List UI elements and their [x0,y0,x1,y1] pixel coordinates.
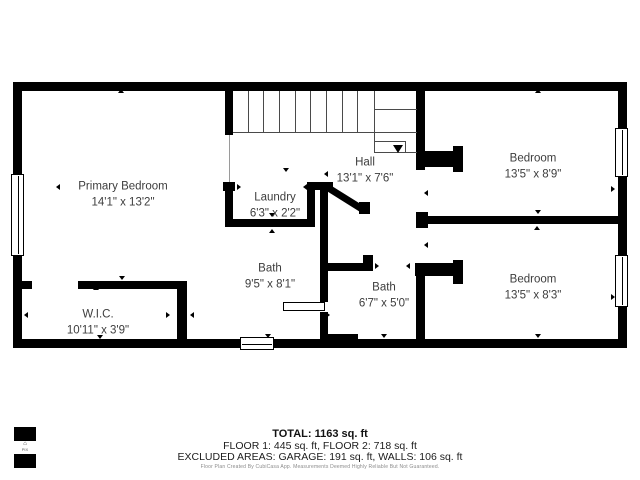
footer-total-area: TOTAL: 1163 sq. ft [0,428,640,440]
logo-bar-top [14,427,36,441]
dimension-tick [265,334,271,338]
wall-bedroom2-left [416,263,425,348]
dimension-tick [190,312,194,318]
wall-diagonal-end-block [359,202,370,214]
floor-plan-page: Primary Bedroom 14'1" x 13'2" Hall 13'1"… [0,0,640,480]
stair-tread [279,91,280,132]
dimension-tick [326,312,330,318]
stair-tread [326,91,327,132]
dimension-tick [24,312,28,318]
room-label-wic: W.I.C. 10'11" x 3'9" [67,308,129,339]
brand-logo: ⌂ PIX [13,427,37,468]
room-dimensions: 6'7" x 5'0" [359,296,409,312]
room-dimensions: 9'5" x 8'1" [245,277,295,293]
stair-tread [295,91,296,132]
room-label-bath-large: Bath 9'5" x 8'1" [245,262,295,293]
dimension-tick [303,184,307,190]
room-label-primary-bedroom: Primary Bedroom 14'1" x 13'2" [78,180,167,211]
room-dimensions: 10'11" x 3'9" [67,323,129,339]
logo-mark: ⌂ PIX [13,441,37,454]
dimension-tick [424,242,428,248]
wall-outer-right [618,82,627,348]
wall-bedroom1-stub-cap [453,146,463,172]
dimension-tick [118,89,124,93]
room-dimensions: 6'3" x 2'2" [250,206,300,222]
dimension-tick [375,263,379,269]
dimension-tick [269,229,275,233]
wall-wic-right [177,281,187,348]
room-name: Bedroom [505,152,562,168]
room-dimensions: 14'1" x 13'2" [78,195,167,211]
room-dimensions: 13'5" x 8'9" [505,167,562,183]
room-name: W.I.C. [67,308,129,324]
stair-winder-tread [374,109,417,110]
stair-winder-tread [374,141,405,142]
window-right-wall-top [615,128,628,177]
window-left-wall [11,174,24,256]
window-mullion [242,344,272,345]
dimension-tick [324,171,328,177]
window-right-wall-bottom [615,255,628,307]
dimension-tick [237,184,241,190]
room-name: Hall [337,156,394,172]
wall-bath2-door-jamb [363,255,373,271]
wall-bath2-stub-cap [453,260,463,284]
dimension-tick [535,89,541,93]
room-name: Bath [245,262,295,278]
room-dimensions: 13'1" x 7'6" [337,171,394,187]
footer-excluded-areas: EXCLUDED AREAS: GARAGE: 191 sq. ft, WALL… [0,451,640,463]
dimension-tick [534,226,540,230]
room-label-bedroom-bottom: Bedroom 13'5" x 8'3" [505,273,562,304]
window-mullion [622,257,623,305]
logo-text: PIX [13,447,37,452]
dimension-tick [611,186,615,192]
stair-tread [310,91,311,132]
room-label-hall: Hall 13'1" x 7'6" [337,156,394,187]
wall-bedroom-divider-cap [416,212,428,228]
wall-central-upper [320,182,328,302]
room-name: Laundry [250,191,300,207]
dimension-tick [283,168,289,172]
opening-primary-bedroom-door [229,135,230,182]
stair-tread [248,91,249,132]
dimension-tick [535,334,541,338]
wall-bedroom1-left [416,91,425,170]
room-label-bath-small: Bath 6'7" x 5'0" [359,281,409,312]
dimension-tick [406,263,410,269]
room-name: Primary Bedroom [78,180,167,196]
dimension-tick [119,276,125,280]
dimension-tick [56,184,60,190]
footer-disclaimer: Floor Plan Created By CubiCasa App. Meas… [0,464,640,470]
dimension-tick [535,210,541,214]
room-dimensions: 13'5" x 8'3" [505,288,562,304]
dimension-tick [166,312,170,318]
window-bottom-wall [240,337,274,350]
room-name: Bath [359,281,409,297]
room-label-bedroom-top: Bedroom 13'5" x 8'9" [505,152,562,183]
stair-winder-edge [374,91,375,153]
logo-bar-bottom [14,454,36,468]
room-name: Bedroom [505,273,562,289]
stair-down-arrow-icon [393,145,403,153]
stair-edge [233,132,417,133]
stair-tread [263,91,264,132]
dimension-tick [424,190,428,196]
window-mullion [622,130,623,175]
window-mullion [18,176,19,254]
sliding-door-leaf [283,302,325,311]
dimension-tick [381,334,387,338]
dimension-tick [93,286,99,290]
wall-stairwell-left [225,91,233,135]
stair-winder-edge [405,141,406,152]
wall-wic-door-stub [22,281,32,289]
wall-bedroom1-stub [425,151,455,167]
wall-plumbing-block [320,334,358,342]
room-label-laundry: Laundry 6'3" x 2'2" [250,191,300,222]
stair-tread [342,91,343,132]
wall-bedroom-divider [420,216,627,224]
dimension-tick [611,294,615,300]
stair-tread [357,91,358,132]
